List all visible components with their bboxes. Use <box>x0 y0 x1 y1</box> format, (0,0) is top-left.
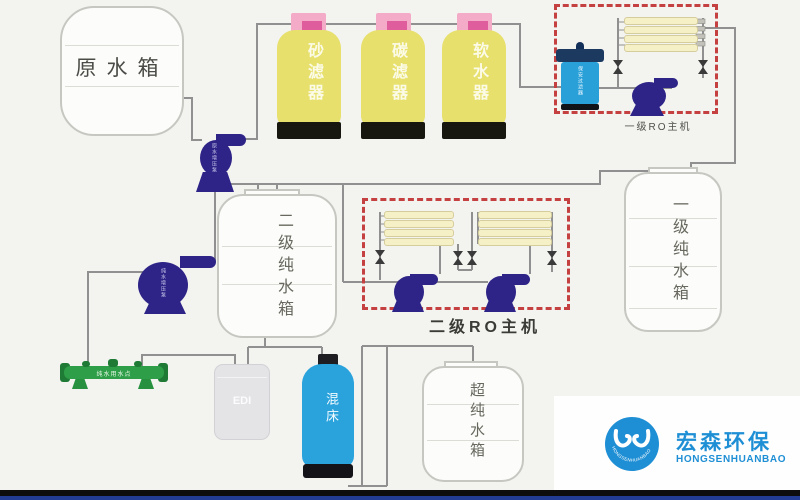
carbon-filter-label: 碳滤器 <box>385 42 409 105</box>
manifold-label: 纯水用水点 <box>60 369 168 378</box>
membrane-tube <box>624 17 698 25</box>
membrane-tube <box>384 211 454 219</box>
ro1-membrane-stack <box>624 17 698 49</box>
pump-label: 原水增压泵 <box>211 143 218 173</box>
ro2-label: 二级RO主机 <box>405 313 565 337</box>
raw-booster-pump-icon: 原水增压泵 <box>194 130 250 192</box>
cartridge-base <box>561 104 599 110</box>
stage1-pure-tank-label: 一级纯水箱 <box>666 196 690 306</box>
logo-cn: 宏森环保 <box>676 426 772 456</box>
ro1-label: 一级RO主机 <box>598 118 718 133</box>
membrane-tube <box>478 229 552 237</box>
sand-filter-base <box>277 122 341 139</box>
transfer-pump-icon: 纯水增压泵 <box>136 250 220 314</box>
membrane-tube <box>624 35 698 43</box>
logo: HONGSENHUANBAO 宏森环保 HONGSENHUANBAO <box>554 396 800 490</box>
process-diagram: 原水箱 原水增压泵 砂滤器 碳滤器 软水器 保安过滤器 <box>0 0 800 500</box>
carbon-filter-base <box>361 122 425 139</box>
edi-label: EDI <box>215 395 269 407</box>
ro2-pump-1-icon <box>392 268 442 312</box>
membrane-tube <box>384 220 454 228</box>
stage1-pure-tank: 一级纯水箱 <box>624 172 722 332</box>
mixed-bed-body: 混床 <box>302 364 354 468</box>
mixed-bed-label: 混床 <box>322 392 341 426</box>
ultra-pure-tank: 超纯水箱 <box>422 366 524 482</box>
use-point-manifold: 纯水用水点 <box>60 358 168 392</box>
membrane-tube <box>624 26 698 34</box>
ro1-pump-icon <box>628 74 680 118</box>
stage2-pure-tank-label: 二级纯水箱 <box>271 212 295 322</box>
ro2-membrane-stack-1 <box>384 211 454 245</box>
softener-label: 软水器 <box>466 42 490 105</box>
ultra-pure-tank-label: 超纯水箱 <box>466 382 487 462</box>
raw-water-tank-label: 原水箱 <box>62 52 182 82</box>
membrane-tube <box>478 211 552 219</box>
membrane-tube <box>478 220 552 228</box>
carbon-filter: 碳滤器 <box>361 30 425 126</box>
cartridge-filter: 保安过滤器 <box>556 42 604 110</box>
ro2-membrane-stack-2 <box>478 211 552 245</box>
membrane-tube <box>624 44 698 52</box>
softener: 软水器 <box>442 30 506 126</box>
tank-level-line <box>65 45 179 46</box>
pump-label: 纯水增压泵 <box>160 268 167 298</box>
bottom-bar-blue <box>0 496 800 500</box>
sand-filter-label: 砂滤器 <box>301 42 325 105</box>
cartridge-body: 保安过滤器 <box>561 62 599 104</box>
sand-filter: 砂滤器 <box>277 30 341 126</box>
stage2-pure-tank: 二级纯水箱 <box>217 194 337 338</box>
cartridge-filter-label: 保安过滤器 <box>577 66 584 96</box>
mixed-bed-column: 混床 <box>302 352 354 488</box>
logo-en: HONGSENHUANBAO <box>676 454 786 465</box>
softener-base <box>442 122 506 139</box>
ro2-pump-2-icon <box>484 268 534 312</box>
logo-mark: HONGSENHUANBAO <box>604 416 660 472</box>
membrane-tube <box>384 238 454 246</box>
cartridge-lid <box>556 49 604 62</box>
raw-water-tank: 原水箱 <box>60 6 184 136</box>
tank-level-line <box>65 86 179 87</box>
edi-module: EDI <box>214 364 270 440</box>
membrane-tube <box>478 238 552 246</box>
membrane-tube <box>384 229 454 237</box>
